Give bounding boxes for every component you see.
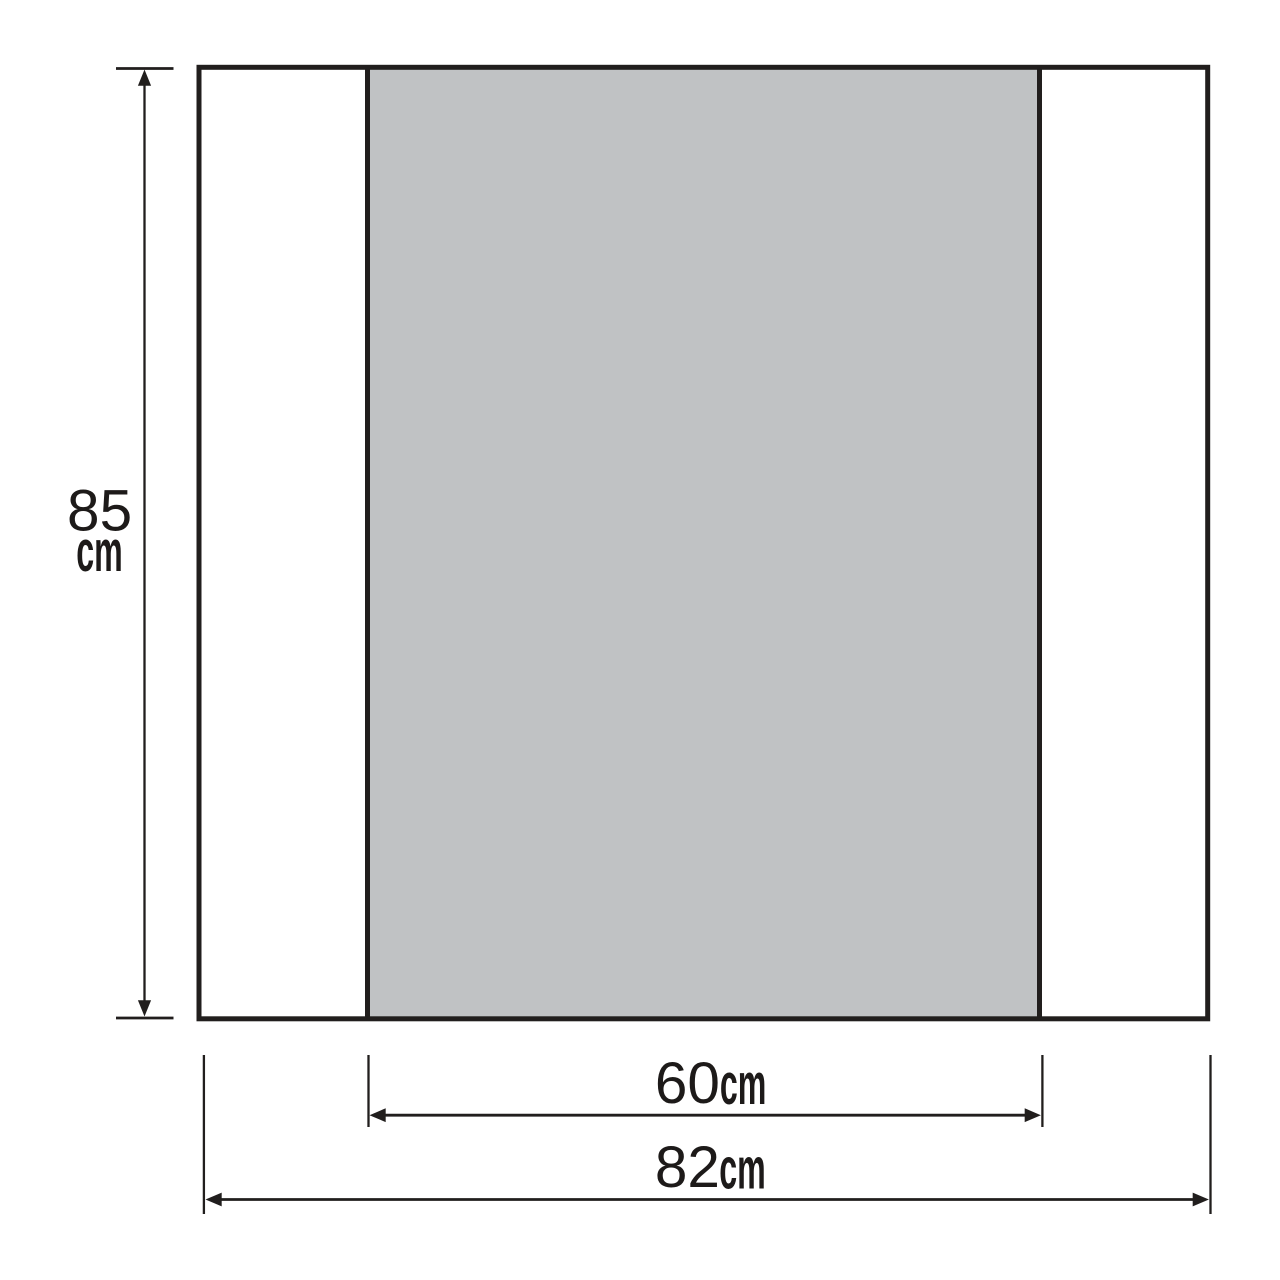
svg-text:cm: cm	[720, 1052, 766, 1118]
svg-text:60: 60	[655, 1051, 720, 1116]
svg-text:82: 82	[655, 1135, 720, 1200]
svg-text:cm: cm	[76, 519, 122, 585]
svg-text:cm: cm	[719, 1136, 765, 1202]
